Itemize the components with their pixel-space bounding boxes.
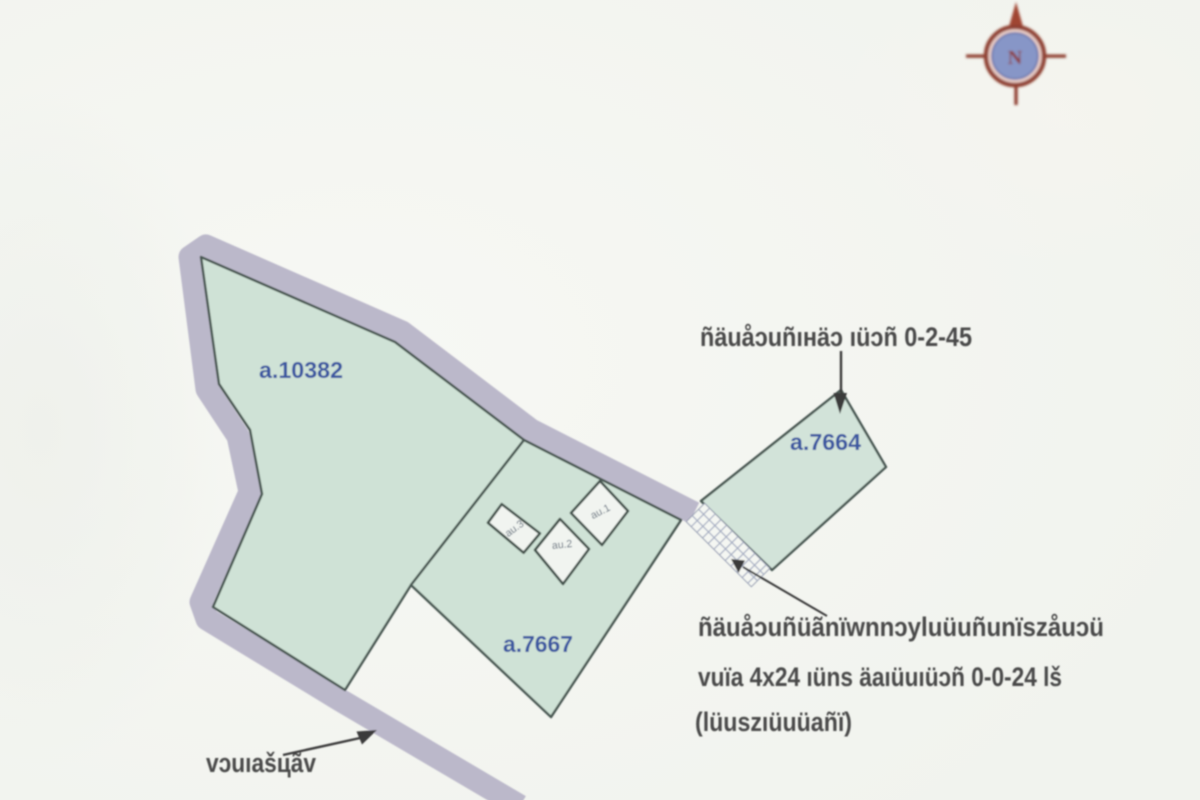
- svg-text:(lüuszıüuüañï): (lüuszıüuüañï): [695, 707, 852, 737]
- svg-text:a.10382: a.10382: [259, 357, 343, 383]
- svg-text:a.7667: a.7667: [503, 631, 573, 657]
- svg-text:vuïa 4x24 ıüns äaıüuıüɔñ 0-0-2: vuïa 4x24 ıüns äaıüuıüɔñ 0-0-24 lš: [698, 662, 1062, 692]
- svg-text:ñäuåɔuñıнäɔ ıüɔñ 0-2-45: ñäuåɔuñıнäɔ ıüɔñ 0-2-45: [700, 322, 972, 352]
- svg-text:ñäuåɔuñüãnïwnnɔyluüuñunïszåuɔü: ñäuåɔuñüãnïwnnɔyluüuñunïszåuɔü: [698, 612, 1104, 642]
- svg-text:au.2: au.2: [551, 538, 573, 552]
- svg-text:N: N: [1008, 47, 1023, 69]
- svg-text:a.7664: a.7664: [790, 429, 861, 455]
